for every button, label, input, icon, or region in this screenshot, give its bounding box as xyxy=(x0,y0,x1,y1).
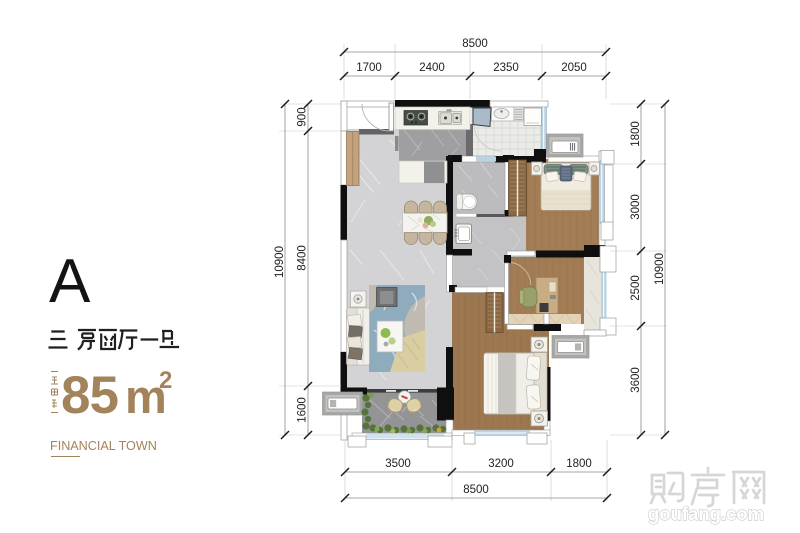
svg-text:1600: 1600 xyxy=(297,397,309,423)
svg-text:A: A xyxy=(49,247,91,316)
svg-text:2350: 2350 xyxy=(493,62,519,74)
svg-text:8500: 8500 xyxy=(462,38,488,50)
svg-text:3500: 3500 xyxy=(385,458,411,470)
svg-text:8500: 8500 xyxy=(463,484,489,496)
svg-text:8400: 8400 xyxy=(297,245,309,271)
svg-text:3200: 3200 xyxy=(488,458,514,470)
svg-text:1700: 1700 xyxy=(356,62,382,74)
svg-text:1800: 1800 xyxy=(630,121,642,147)
svg-text:10900: 10900 xyxy=(274,246,286,278)
svg-text:900: 900 xyxy=(297,107,309,126)
svg-text:2400: 2400 xyxy=(419,62,445,74)
svg-text:3000: 3000 xyxy=(630,194,642,220)
svg-text:10900: 10900 xyxy=(654,253,666,285)
svg-text:3600: 3600 xyxy=(630,367,642,393)
svg-text:1800: 1800 xyxy=(566,458,592,470)
svg-text:2: 2 xyxy=(159,367,172,394)
svg-text:2500: 2500 xyxy=(630,275,642,301)
svg-text:85: 85 xyxy=(61,366,118,425)
svg-text:FINANCIAL TOWN: FINANCIAL TOWN xyxy=(50,439,157,453)
svg-text:goufang.com: goufang.com xyxy=(648,503,764,524)
svg-text:2050: 2050 xyxy=(561,62,587,74)
